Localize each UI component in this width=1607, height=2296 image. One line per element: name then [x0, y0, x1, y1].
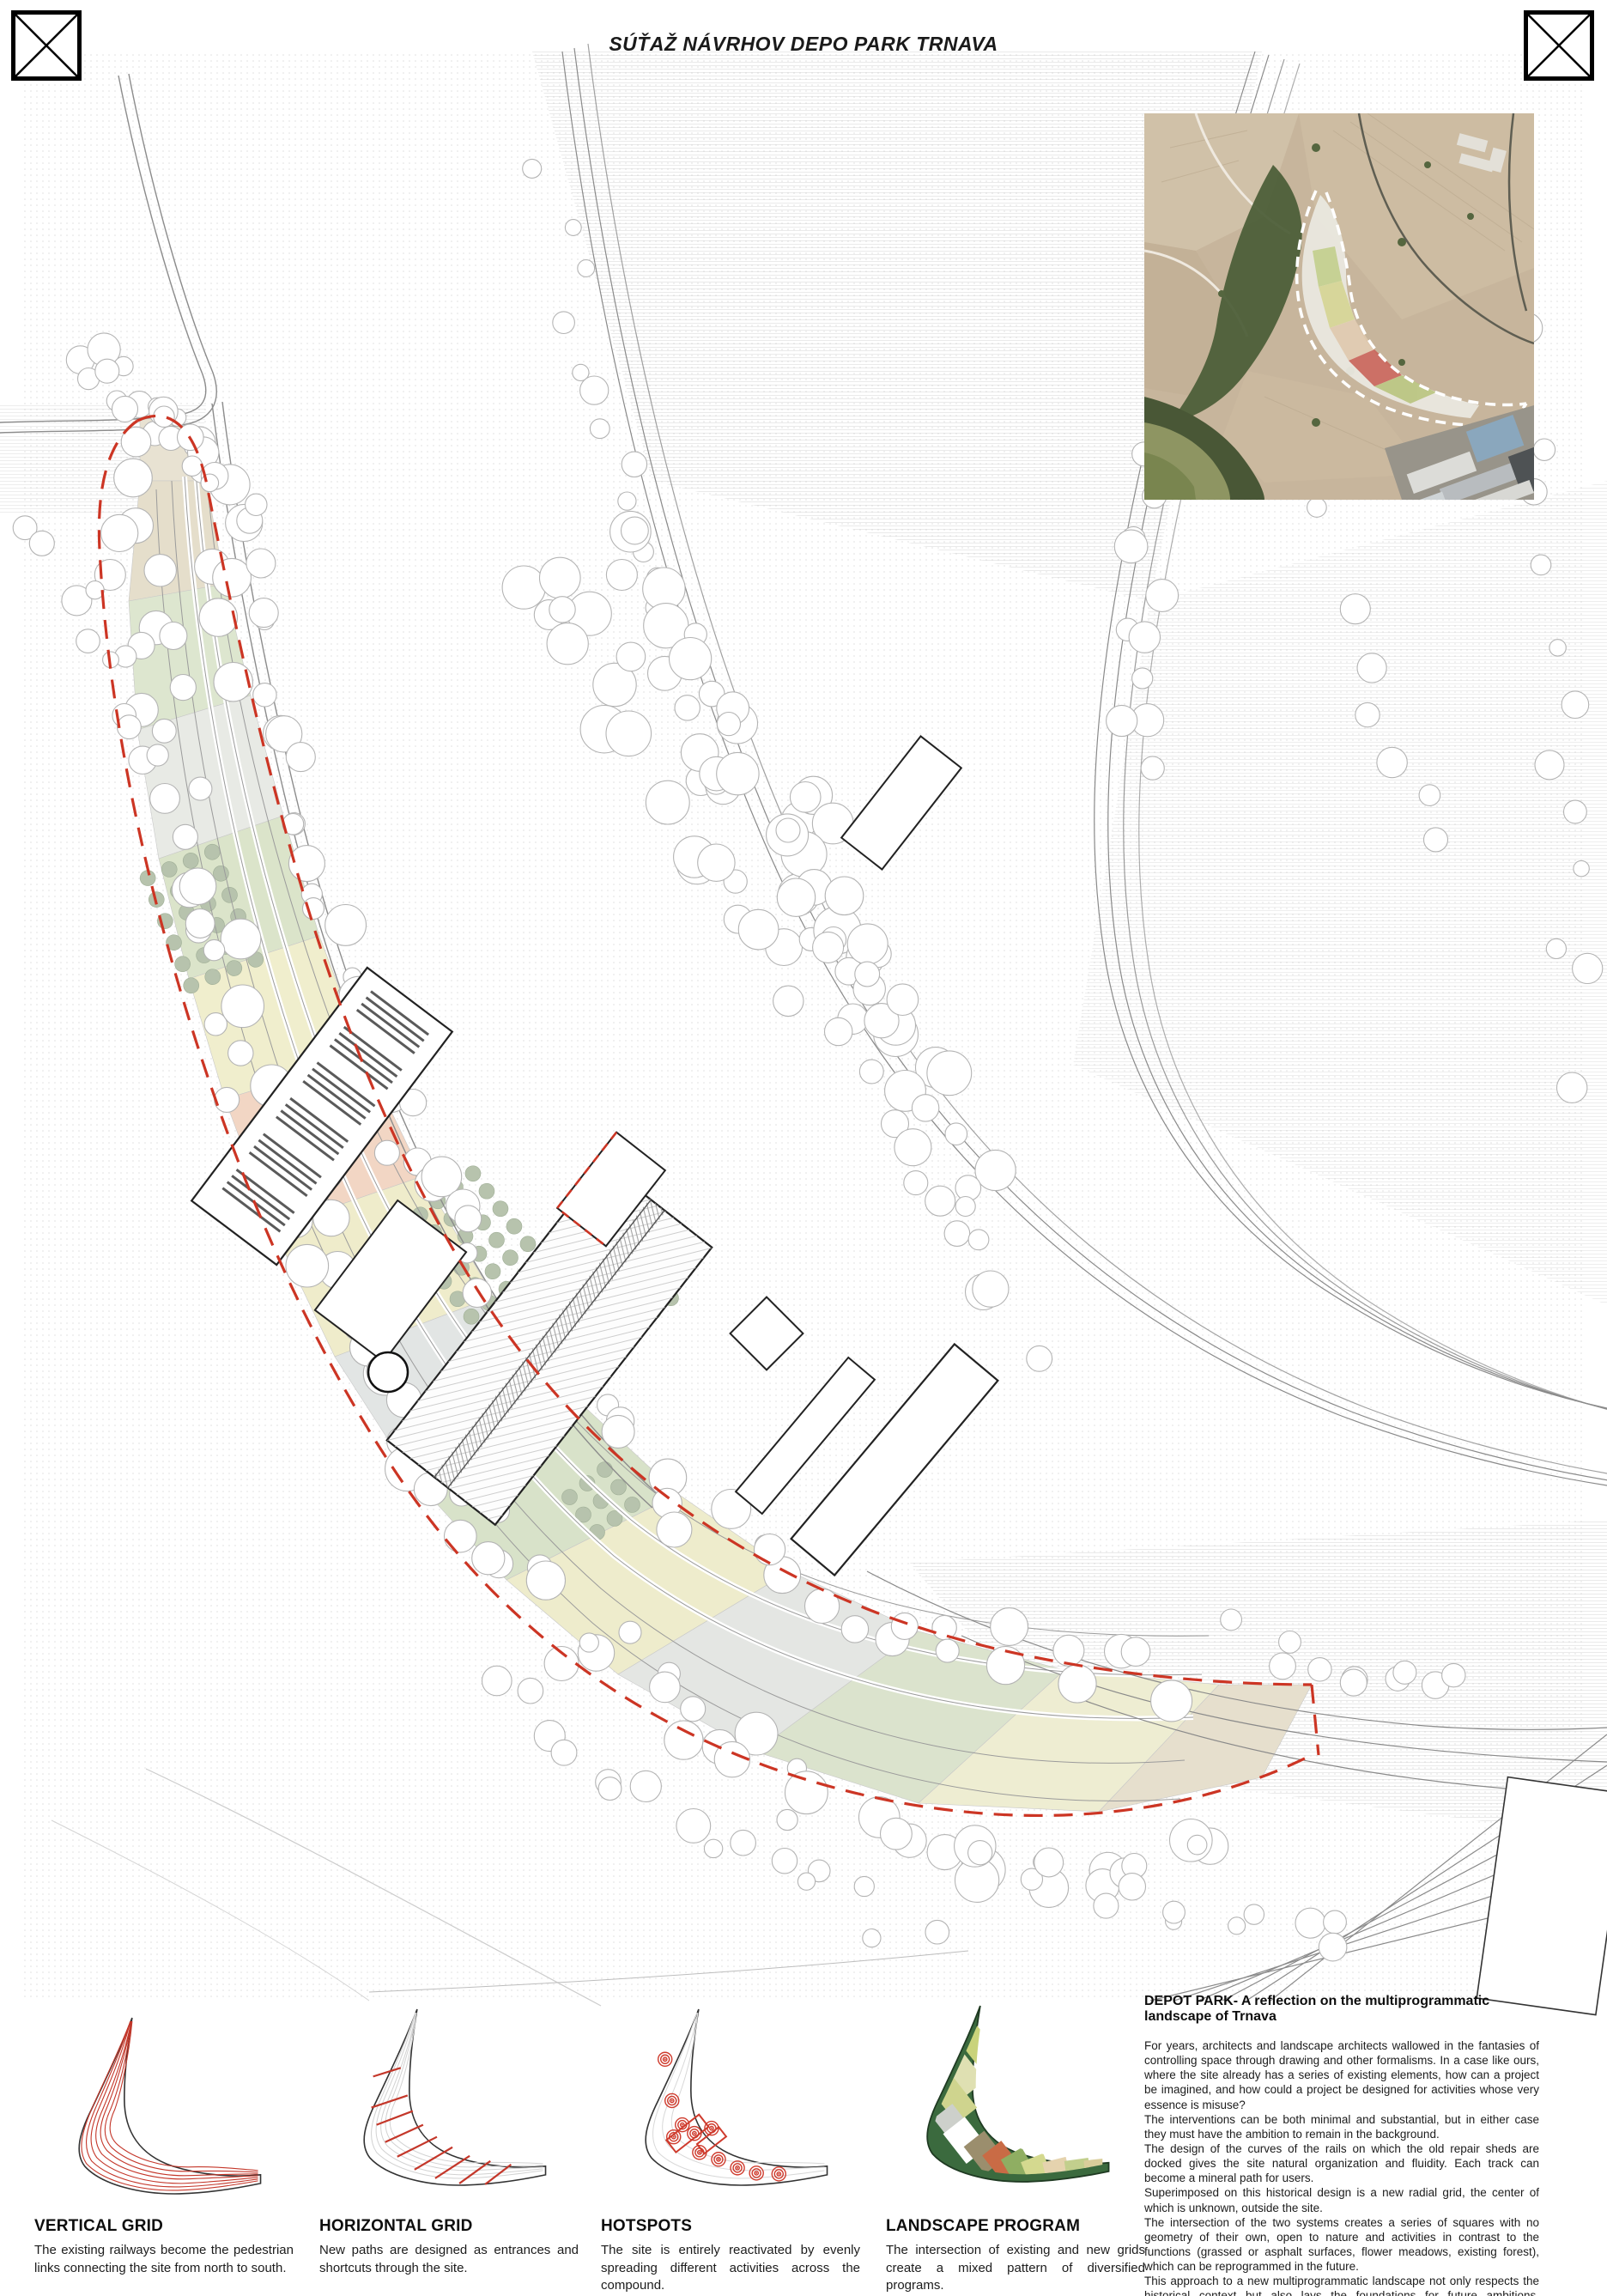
description-paragraph: The design of the curves of the rails on…	[1144, 2141, 1539, 2185]
diagram-hotspots	[611, 2004, 834, 2198]
caption-text: The site is entirely reactivated by even…	[601, 2242, 860, 2295]
caption-title: HORIZONTAL GRID	[319, 2217, 579, 2236]
caption-text: The existing railways become the pedestr…	[34, 2242, 294, 2277]
description-paragraph: The intersection of the two systems crea…	[1144, 2215, 1539, 2275]
caption-hotspots: HOTSPOTS The site is entirely reactivate…	[601, 2217, 860, 2295]
caption-title: HOTSPOTS	[601, 2217, 860, 2236]
description-paragraph: The interventions can be both minimal an…	[1144, 2112, 1539, 2141]
description-heading: DEPOT PARK- A reflection on the multipro…	[1144, 1994, 1539, 2025]
caption-title: LANDSCAPE PROGRAM	[886, 2217, 1145, 2236]
diagram-vertical-grid	[45, 2013, 268, 2207]
caption-landscape-program: LANDSCAPE PROGRAM The intersection of ex…	[886, 2217, 1145, 2295]
caption-text: New paths are designed as entrances and …	[319, 2242, 579, 2277]
aerial-photo-inset	[1144, 113, 1534, 500]
competition-board: SÚŤAŽ NÁVRHOV DEPO PARK TRNAVA	[0, 0, 1607, 2296]
page-title: SÚŤAŽ NÁVRHOV DEPO PARK TRNAVA	[0, 33, 1607, 56]
description-paragraph: This approach to a new multiprogrammatic…	[1144, 2274, 1539, 2296]
diagram-landscape-program	[893, 2001, 1116, 2195]
description-paragraph: Superimposed on this historical design i…	[1144, 2185, 1539, 2214]
caption-title: VERTICAL GRID	[34, 2217, 294, 2236]
turntable-circle	[368, 1352, 408, 1392]
caption-horizontal-grid: HORIZONTAL GRID New paths are designed a…	[319, 2217, 579, 2277]
description-paragraph: For years, architects and landscape arch…	[1144, 2038, 1539, 2112]
caption-text: The intersection of existing and new gri…	[886, 2242, 1145, 2295]
project-description: DEPOT PARK- A reflection on the multipro…	[1144, 1994, 1539, 2296]
diagram-horizontal-grid	[330, 2004, 553, 2198]
caption-vertical-grid: VERTICAL GRID The existing railways beco…	[34, 2217, 294, 2277]
